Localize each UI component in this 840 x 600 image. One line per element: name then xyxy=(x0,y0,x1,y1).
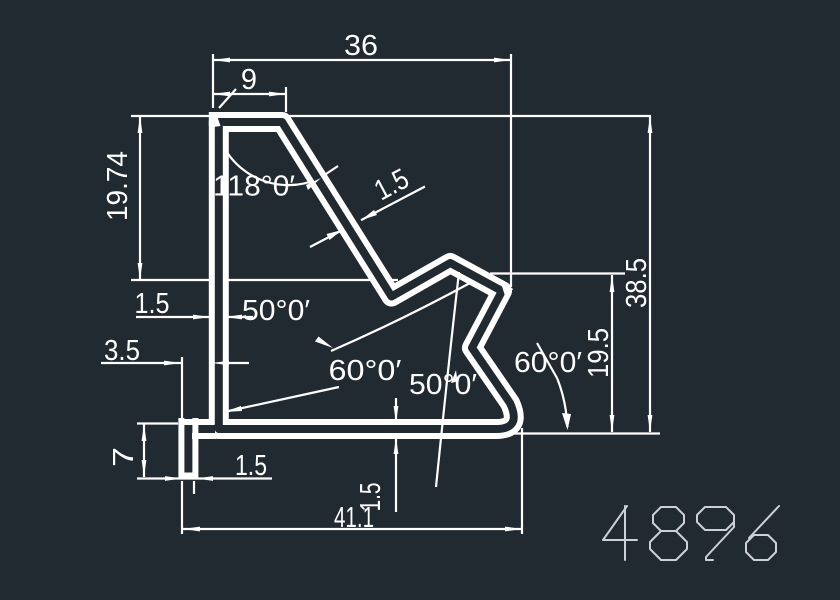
svg-text:50°0′: 50°0′ xyxy=(409,369,477,401)
svg-text:60°0′: 60°0′ xyxy=(329,355,402,387)
svg-text:19.74: 19.74 xyxy=(102,151,134,221)
svg-text:50°0′: 50°0′ xyxy=(242,295,310,327)
svg-text:38.5: 38.5 xyxy=(621,258,653,308)
svg-text:9: 9 xyxy=(241,64,257,96)
svg-text:7: 7 xyxy=(108,447,140,467)
svg-text:3.5: 3.5 xyxy=(104,335,140,367)
svg-text:41.1: 41.1 xyxy=(334,502,374,534)
svg-text:118°0′: 118°0′ xyxy=(213,171,295,203)
svg-text:19.5: 19.5 xyxy=(583,328,615,378)
svg-text:1.5: 1.5 xyxy=(135,288,170,320)
svg-text:1.5: 1.5 xyxy=(235,450,267,482)
svg-text:36: 36 xyxy=(344,30,378,62)
svg-text:60°0′: 60°0′ xyxy=(514,347,582,379)
